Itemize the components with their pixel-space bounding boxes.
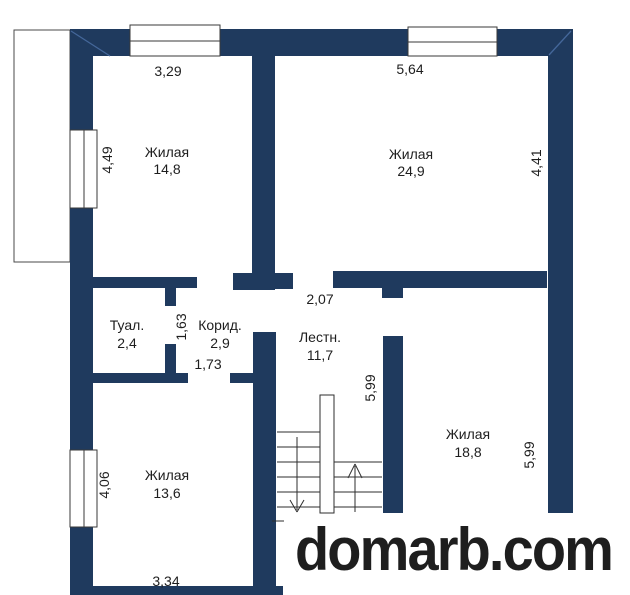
room-area-living-bottom-left: 13,6: [153, 485, 180, 501]
room-area-living-top-left: 14,8: [153, 161, 180, 177]
room-label-living-right: Жилая: [446, 426, 490, 442]
room-label-corridor: Корид.: [198, 317, 242, 333]
stairs-down-arrow-head: [297, 500, 304, 512]
dim-corridor-width: 1,63: [173, 313, 189, 340]
wall-stub-room18-door: [382, 288, 403, 298]
wall-divider-top-rooms: [252, 56, 275, 290]
wall-room13-top-left: [93, 373, 188, 383]
dim-stairs-depth: 5,99: [362, 374, 378, 401]
wall-junction-left-arm: [233, 273, 252, 290]
dim-wall-right-upper: 4,41: [528, 149, 544, 176]
dim-window-left-lower: 4,06: [96, 471, 112, 498]
dim-room-bottom-width: 3,34: [152, 573, 179, 589]
wall-room14-bottom: [93, 277, 197, 288]
wall-toilet-door-upper: [165, 288, 176, 306]
stair-stringer: [320, 395, 334, 513]
floor-plan-svg: Жилая 14,8 Жилая 24,9 Туал. 2,4 Корид. 2…: [0, 0, 630, 595]
wall-room24-bottom: [333, 271, 547, 288]
staircase: [272, 395, 382, 521]
floor-plan-page: Жилая 14,8 Жилая 24,9 Туал. 2,4 Корид. 2…: [0, 0, 630, 595]
wall-toilet-door-lower: [165, 344, 176, 373]
wall-top-middle-segment: [220, 29, 408, 56]
wall-right-exterior: [548, 29, 573, 513]
room-label-stairs: Лестн.: [299, 329, 341, 345]
room-area-living-right: 18,8: [454, 444, 481, 460]
room-label-living-top-right: Жилая: [389, 146, 433, 162]
room-label-toilet: Туал.: [110, 317, 144, 333]
wall-junction-right-arm: [275, 273, 293, 289]
wall-left-lower-segment: [70, 527, 93, 595]
balcony-outline: [14, 30, 70, 262]
room-area-living-top-right: 24,9: [397, 163, 424, 179]
stairs-down-arrow-head: [290, 500, 297, 512]
dim-opening-hall: 2,07: [306, 291, 333, 307]
dim-window-left-upper: 4,49: [99, 146, 115, 173]
wall-left-upper-segment: [70, 29, 93, 130]
watermark-text: domarb.com: [295, 516, 612, 583]
wall-left-middle-segment: [70, 208, 93, 450]
room-label-living-top-left: Жилая: [145, 144, 189, 160]
stairs-up-arrow: [348, 464, 362, 512]
dim-window-top-left: 3,29: [154, 63, 181, 79]
dim-window-top-right: 5,64: [396, 61, 423, 77]
room-area-toilet: 2,4: [117, 335, 137, 351]
room-area-stairs: 11,7: [307, 347, 333, 363]
room-area-corridor: 2,9: [210, 335, 230, 351]
wall-middle-vertical: [253, 332, 276, 595]
dim-corridor-door: 1,73: [194, 356, 221, 372]
wall-room13-top-right: [230, 373, 253, 383]
dim-room-right-depth: 5,99: [521, 441, 537, 468]
stairs-down-arrow: [290, 437, 304, 512]
stairs-up-arrow-head: [355, 464, 362, 478]
wall-stairs-right: [383, 336, 403, 513]
stairs-up-arrow-head: [348, 464, 355, 478]
room-label-living-bottom-left: Жилая: [145, 467, 189, 483]
